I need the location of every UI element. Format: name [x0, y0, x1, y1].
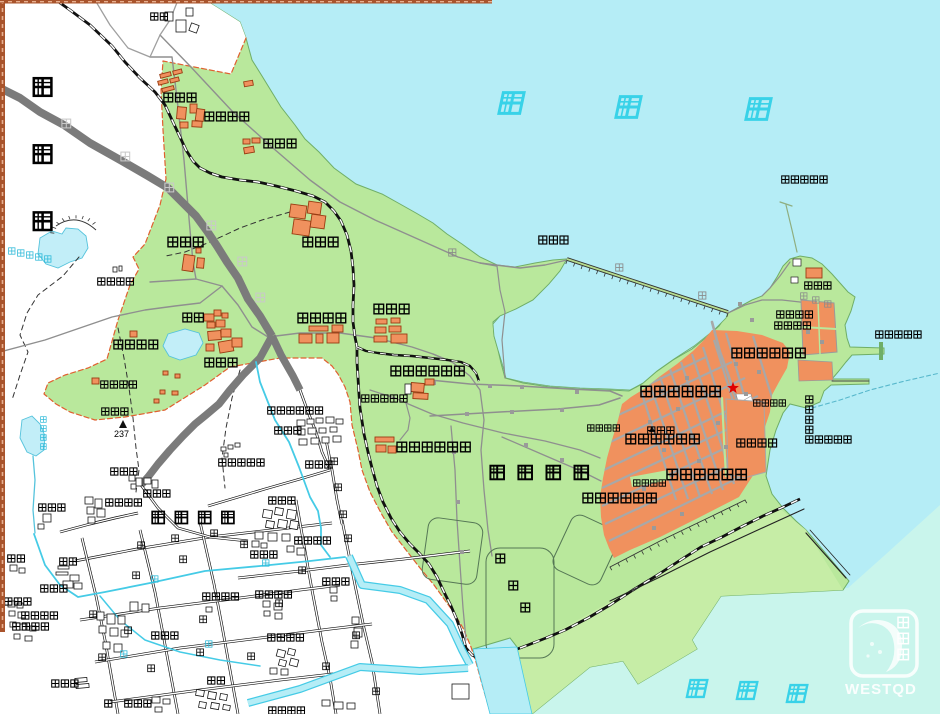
svg-text:237: 237 [114, 429, 129, 439]
svg-text:WESTQD: WESTQD [845, 681, 917, 698]
